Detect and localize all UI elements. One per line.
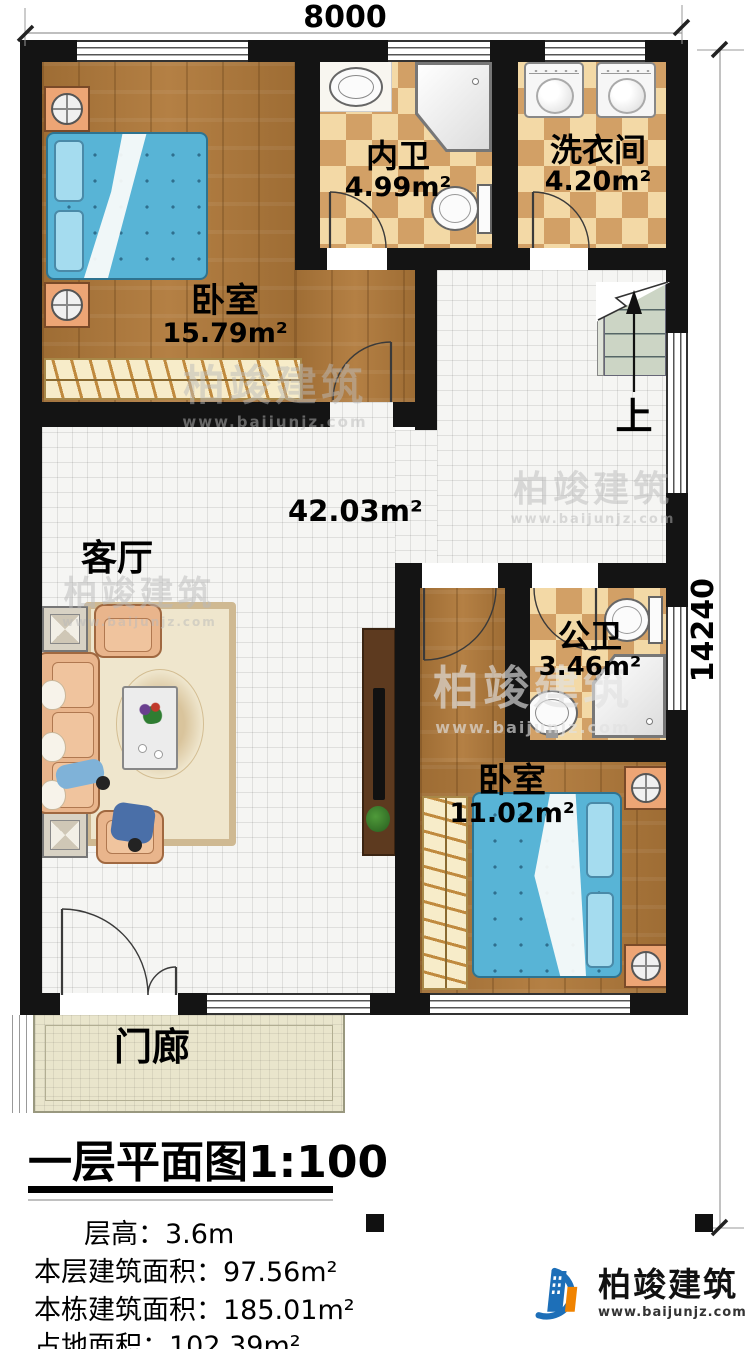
dim-tick — [674, 20, 689, 35]
wall-segment — [666, 493, 688, 607]
person-head — [96, 776, 110, 790]
brand-text-block: 柏竣建筑 www.baijunjz.com — [598, 1268, 747, 1320]
room-label-porch: 门廊 — [92, 1028, 212, 1068]
info-footprint-area: 占地面积：102.39m² — [34, 1324, 301, 1349]
washer-drum — [536, 78, 574, 114]
window — [430, 993, 630, 1015]
room-label-ensuite-bath: 内卫 4.99m² — [330, 140, 466, 202]
dim-tick — [18, 26, 33, 41]
wall-segment — [588, 248, 666, 270]
porch-side-steps — [12, 1015, 33, 1113]
washer-drum — [608, 78, 646, 114]
brand-url: www.baijunjz.com — [598, 1305, 747, 1320]
dimension-top: 8000 — [295, 0, 395, 35]
window — [545, 40, 645, 62]
toilet-tank — [477, 184, 492, 234]
room-label-bedroom2: 卧室 11.02m² — [432, 764, 592, 828]
person-head — [128, 838, 142, 852]
plan-title: 一层平面图1:100 — [28, 1126, 388, 1190]
info-value: 97.56m² — [223, 1257, 337, 1288]
wall-segment — [178, 993, 207, 1015]
room-area: 4.99m² — [330, 174, 466, 202]
info-label: 本层建筑面积： — [34, 1257, 223, 1288]
window — [207, 993, 370, 1015]
lamp-icon — [631, 951, 661, 981]
info-value: 102.39m² — [169, 1331, 301, 1349]
wall-segment — [505, 588, 530, 762]
lamp-icon — [51, 289, 83, 321]
wardrobe-closet — [44, 358, 302, 400]
dimension-right: 14240 — [686, 578, 721, 682]
wall-segment — [395, 563, 420, 993]
stairs-up-label: 上 — [608, 386, 660, 440]
staircase — [604, 284, 666, 376]
sink-basin — [338, 75, 374, 99]
room-label-public-bath: 公卫 3.46m² — [528, 620, 652, 681]
cup-icon — [138, 744, 147, 753]
washer-controls — [529, 66, 579, 74]
sink-basin — [535, 699, 569, 727]
room-name: 卧室 — [140, 284, 310, 320]
wall-segment — [20, 993, 60, 1015]
info-floor-height: 层高：3.6m — [84, 1212, 234, 1251]
room-name: 公卫 — [528, 620, 652, 654]
throw-pillow — [40, 680, 66, 710]
wall-segment — [598, 563, 688, 588]
info-label: 本栋建筑面积： — [34, 1295, 223, 1326]
room-area-living: 42.03m² — [288, 496, 418, 526]
table-lamp-icon — [50, 614, 80, 644]
room-area: 42.03m² — [288, 496, 418, 526]
pillow — [54, 140, 84, 202]
wall-segment — [370, 993, 430, 1015]
wall-segment — [498, 563, 532, 588]
nightstand — [44, 282, 90, 328]
info-value: 3.6m — [165, 1219, 234, 1250]
room-name: 门廊 — [92, 1028, 212, 1068]
dim-tick — [712, 42, 727, 57]
wall-segment — [42, 402, 330, 427]
room-area: 4.20m² — [518, 168, 678, 196]
plant-icon — [366, 806, 390, 832]
title-underline-thin — [28, 1199, 333, 1201]
brand-logo-icon — [528, 1258, 590, 1330]
info-label: 层高： — [84, 1219, 165, 1250]
info-value: 185.01m² — [223, 1295, 355, 1326]
sink-icon — [329, 67, 383, 107]
nightstand — [44, 86, 90, 132]
closet-rod — [46, 379, 300, 381]
plan-title-scale: 1:100 — [248, 1137, 388, 1188]
person-on-sofa — [44, 750, 108, 806]
title-underline — [28, 1186, 333, 1193]
wall-segment — [20, 40, 42, 1015]
side-table — [42, 606, 88, 652]
wall-segment — [295, 62, 320, 270]
washing-machine — [524, 62, 584, 118]
tv-icon — [373, 688, 385, 800]
room-name: 洗衣间 — [518, 134, 678, 168]
wall-segment — [630, 993, 688, 1015]
shower-drain — [472, 78, 479, 85]
reference-square — [695, 1214, 713, 1232]
armchair — [94, 604, 162, 658]
wall-segment — [490, 40, 545, 62]
washer-controls — [601, 66, 651, 74]
window — [77, 40, 248, 62]
room-name: 内卫 — [330, 140, 466, 174]
room-name: 卧室 — [432, 764, 592, 800]
wall-segment — [393, 402, 437, 427]
pillow — [586, 892, 614, 968]
lamp-icon — [51, 93, 83, 125]
floor-bedroom1-corridor — [295, 270, 415, 402]
sink-faucet — [546, 730, 558, 738]
pillow — [54, 210, 84, 272]
nightstand — [624, 766, 668, 810]
room-label-living: 客厅 — [62, 540, 172, 578]
stair-stringer — [597, 284, 604, 376]
brand-name: 柏竣建筑 — [598, 1268, 747, 1301]
room-area: 15.79m² — [140, 320, 310, 348]
side-table — [42, 812, 88, 858]
wall-segment — [505, 740, 688, 762]
washing-machine — [596, 62, 656, 118]
shower-drain — [646, 718, 653, 725]
reference-square — [366, 1214, 384, 1232]
table-lamp-icon — [50, 820, 80, 850]
info-floor-area: 本层建筑面积：97.56m² — [34, 1250, 337, 1289]
room-area: 3.46m² — [528, 654, 652, 681]
flower-vase-icon — [136, 700, 166, 724]
wall-segment — [387, 248, 530, 270]
wall-segment — [248, 40, 388, 62]
person-on-armchair — [104, 798, 164, 862]
armchair-cushion — [104, 618, 152, 652]
plan-title-text: 一层平面图 — [28, 1137, 248, 1188]
room-label-laundry: 洗衣间 4.20m² — [518, 134, 678, 196]
room-name: 客厅 — [62, 540, 172, 578]
wall-segment — [320, 248, 327, 270]
floor-plan: 柏竣建筑 www.baijunjz.com 柏竣建筑 www.baijunjz.… — [0, 0, 750, 1349]
cup-icon — [154, 750, 163, 759]
room-label-bedroom1: 卧室 15.79m² — [140, 284, 310, 348]
window — [666, 607, 688, 710]
window — [388, 40, 490, 62]
dim-tick — [712, 1220, 727, 1235]
room-area: 11.02m² — [432, 800, 592, 828]
wall-segment — [492, 62, 518, 248]
floor-bedroom2-corridor — [420, 588, 505, 762]
coffee-table — [122, 686, 178, 770]
lamp-icon — [631, 773, 661, 803]
window — [666, 333, 688, 493]
nightstand — [624, 944, 668, 988]
brand-logo: 柏竣建筑 www.baijunjz.com — [528, 1258, 747, 1330]
info-label: 占地面积： — [34, 1331, 169, 1349]
info-building-area: 本栋建筑面积：185.01m² — [34, 1288, 355, 1327]
